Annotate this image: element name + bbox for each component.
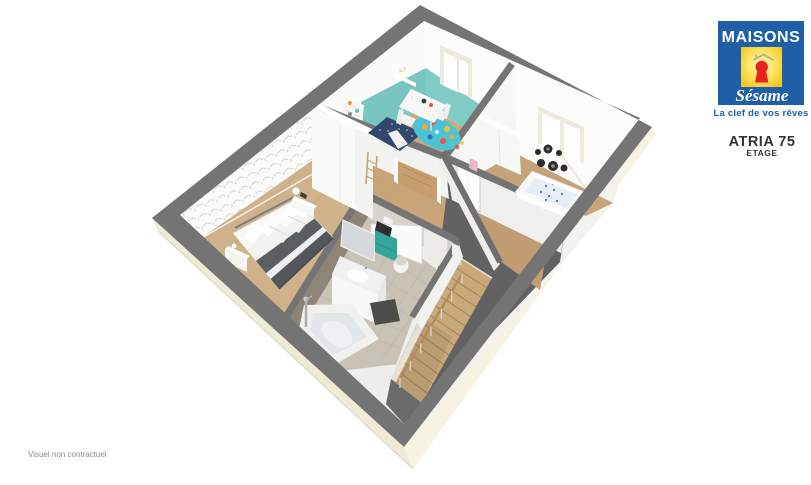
svg-text:La clef de vos rêves: La clef de vos rêves [713,108,808,119]
svg-text:ETAGE: ETAGE [746,148,777,158]
svg-text:Visuel non contractuel: Visuel non contractuel [28,450,107,459]
svg-text:Sésame: Sésame [736,86,789,105]
svg-text:MAISONS: MAISONS [722,29,801,46]
